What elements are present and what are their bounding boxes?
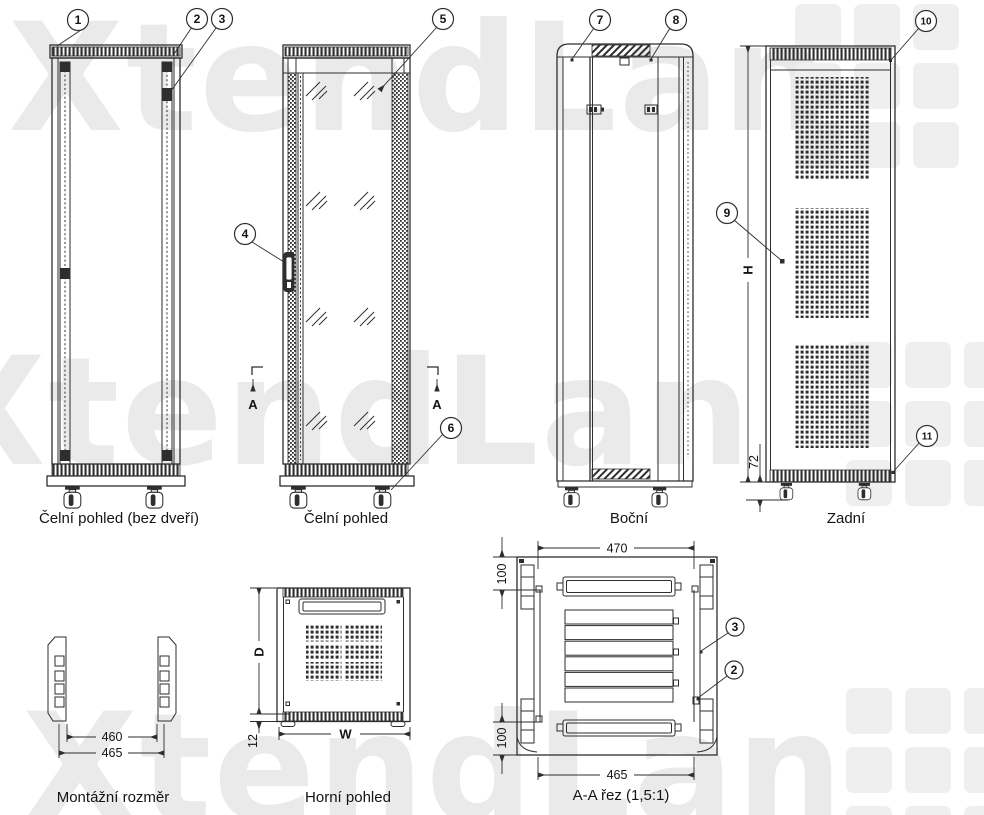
perforated-panel-1: [795, 77, 869, 180]
caster-front-left: [290, 486, 307, 508]
section-letter-left: A: [248, 397, 258, 412]
callout-2-number: 2: [194, 12, 201, 26]
callout-10: 10: [889, 11, 937, 63]
caster-side-front: [564, 487, 579, 507]
glass-reflection-marks: [306, 82, 375, 430]
caster-front-left: [64, 486, 81, 508]
front-vent-strip: [283, 588, 403, 597]
dim-72-label: 72: [747, 455, 761, 469]
caster-rear-right: [858, 483, 871, 500]
top-vent-strip: [52, 47, 180, 56]
view-top: D 12 W Horní pohled: [246, 588, 410, 806]
callout-1-number: 1: [75, 13, 82, 27]
top-vent-strip: [285, 47, 408, 56]
mounting-rail-right-profile: [158, 637, 176, 721]
bottom-vent-strip: [285, 464, 408, 476]
dim-H-label: H: [741, 265, 756, 274]
callout-6-number: 6: [448, 421, 455, 435]
dim-465-section-label: 465: [607, 768, 628, 782]
callout-8-number: 8: [673, 13, 680, 27]
technical-drawing-page: XtendLan XtendLan XtendLan: [0, 0, 984, 815]
callout-4-number: 4: [242, 227, 249, 241]
caster-side-rear: [652, 487, 667, 507]
perforated-panel-3: [795, 345, 869, 448]
top-vent-hatch: [592, 45, 650, 56]
caption-side: Boční: [610, 510, 649, 527]
dimension-mounting-inner: 460: [67, 724, 157, 744]
caption-front: Čelní pohled: [304, 510, 388, 527]
callout-section-2: 2: [696, 661, 743, 701]
section-mark-left: A: [248, 367, 263, 412]
foot-left: [281, 722, 295, 727]
dim-D-label: D: [252, 647, 267, 656]
dimension-section-bottom-width: 465: [538, 757, 694, 782]
door-perforated-strip-right: [392, 73, 408, 464]
mounting-rail-right: [162, 62, 172, 464]
door-lock: [284, 252, 295, 292]
mounting-rail-left-profile: [48, 637, 66, 721]
view-mounting-dimensions: 460 465 Montážní rozměr: [48, 637, 176, 806]
dim-100-top-label: 100: [495, 564, 509, 585]
section-rail-left: [521, 565, 542, 743]
section-letter-right: A: [432, 397, 442, 412]
bottom-vent-strip: [770, 470, 891, 482]
section-rail-right: [692, 565, 713, 743]
top-perforated-area: [306, 624, 382, 681]
view-front-with-door: A A Čelní pohled: [248, 45, 442, 527]
callout-10-number: 10: [920, 17, 932, 28]
dimension-section-top-width: 470: [538, 541, 694, 569]
section-louver-slats: [565, 610, 679, 702]
section-mark-right: A: [427, 367, 442, 412]
caption-mounting: Montážní rozměr: [57, 789, 170, 806]
callout-11: 11: [892, 426, 938, 475]
callout-section-2-number: 2: [731, 663, 738, 677]
view-section-aa: 470 100 100 465: [493, 537, 717, 804]
foot-right: [391, 722, 405, 727]
callout-4: 4: [235, 224, 285, 263]
dim-470-label: 470: [607, 542, 628, 556]
base-plate: [280, 476, 414, 486]
caption-section: A-A řez (1,5:1): [573, 787, 670, 804]
rear-vent-strip: [283, 712, 403, 721]
caster-front-right: [374, 486, 391, 508]
perforated-panel-2: [795, 208, 869, 318]
callout-section-3-number: 3: [732, 620, 739, 634]
view-side: Boční: [557, 44, 693, 527]
caption-front-no-door: Čelní pohled (bez dveří): [39, 510, 199, 527]
caster-front-right: [146, 486, 163, 508]
cable-entry-slot: [299, 599, 385, 614]
base-plate: [558, 481, 692, 487]
callout-11-number: 11: [922, 432, 933, 443]
callout-3-number: 3: [219, 12, 226, 26]
view-front-without-door: Čelní pohled (bez dveří): [39, 45, 199, 527]
callout-9: 9: [717, 203, 785, 264]
bottom-vent-hatch: [592, 469, 650, 479]
dim-460-label: 460: [102, 730, 123, 744]
dimension-top-flange: 12: [246, 722, 277, 748]
drawing-svg: Čelní pohled (bez dveří) 1 2 3: [0, 0, 984, 815]
callout-5-number: 5: [440, 12, 447, 26]
bottom-vent-strip: [52, 464, 180, 476]
dim-100-bottom-label: 100: [495, 728, 509, 749]
dimension-rear-height: H: [740, 46, 768, 482]
dimension-top-width: W: [279, 727, 410, 742]
top-vent-strip: [770, 48, 891, 60]
dim-12-label: 12: [246, 734, 260, 748]
caption-rear: Zadní: [827, 510, 866, 527]
mounting-rail-left: [60, 62, 70, 464]
callout-section-3: 3: [699, 618, 744, 654]
caption-top: Horní pohled: [305, 789, 391, 806]
callout-1: 1: [57, 10, 89, 47]
callout-7-number: 7: [597, 13, 604, 27]
dim-465-label: 465: [102, 746, 123, 760]
dim-W-label: W: [339, 727, 352, 742]
callout-9-number: 9: [724, 206, 731, 220]
side-latch-rear: [645, 105, 657, 114]
section-top-bar: [557, 577, 681, 596]
view-rear: Zadní H 72: [740, 46, 895, 527]
base-plate: [47, 476, 185, 486]
section-bottom-bar: [557, 720, 681, 736]
caster-rear-left: [780, 483, 793, 500]
callout-8: 8: [650, 10, 687, 62]
